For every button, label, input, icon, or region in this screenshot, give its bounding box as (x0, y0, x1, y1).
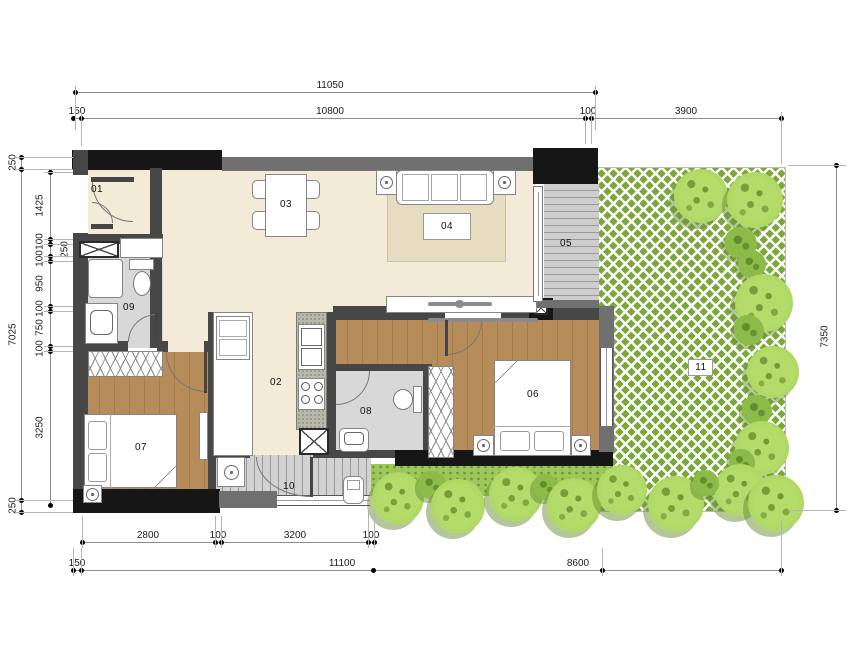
tree-13 (748, 475, 804, 531)
room-label-bath-ensuite: 08 (356, 406, 376, 417)
room-label-balcony: 05 (556, 238, 576, 249)
shower-tray (88, 259, 123, 298)
hall-passage-floor (160, 240, 208, 352)
balcony-sliding-door (533, 186, 543, 302)
dim-top-3900: 3900 (666, 106, 706, 117)
lamp-nightstand-left (477, 439, 490, 452)
wall-top-gray (222, 157, 535, 171)
column-top-right (533, 148, 598, 184)
dim-left-950: 950 (35, 270, 46, 298)
sink-basin-2 (301, 348, 322, 366)
window-master-line (606, 348, 607, 426)
bed-second-blanket-line (110, 414, 111, 488)
dim-left-1425: 1425 (35, 192, 46, 220)
dim-bottom-3200: 3200 (275, 530, 315, 541)
sink-main (90, 310, 113, 335)
bush-3 (734, 315, 764, 345)
tree-8 (431, 479, 485, 533)
toilet-main-tank (129, 259, 154, 270)
tree-10 (547, 478, 601, 532)
bath-main-door-leaf (155, 313, 158, 342)
entry-cabinet (120, 238, 163, 258)
dim-bottom-100a: 100 (208, 530, 228, 541)
dim-left-100d: 100 (35, 335, 46, 363)
dining-chair-4 (305, 211, 320, 230)
bed-second-pillow-2 (88, 453, 107, 482)
dim-top-150: 150 (67, 106, 87, 117)
entry-door-leaf-small (91, 224, 113, 229)
burner-3 (301, 395, 310, 404)
service-door-leaf (310, 457, 313, 497)
sink-ensuite-inner (344, 432, 364, 445)
dim-left-100b: 100 (35, 245, 46, 273)
bedroom2-door-leaf (204, 352, 207, 393)
dim-left-7025: 7025 (8, 320, 19, 350)
dim-line-left-outer (21, 157, 22, 512)
toilet-ensuite-bowl (393, 389, 413, 410)
fridge-inner-2 (219, 339, 247, 356)
bed-master-pillow-1 (500, 431, 530, 451)
floor-plan-canvas: 01 02 03 04 05 06 07 08 09 10 11 11050 1… (0, 0, 855, 655)
sofa-cushion-1 (402, 174, 429, 201)
dim-right-7350: 7350 (820, 322, 831, 352)
lamp-right (498, 176, 511, 189)
dim-line-right (836, 165, 837, 510)
tv-living-stand (455, 300, 464, 308)
tree-1 (674, 169, 728, 223)
room-label-kitchen: 02 (266, 377, 286, 388)
shaft (299, 428, 329, 455)
bed-second-fold (155, 466, 176, 487)
bed-master-fold (495, 361, 517, 383)
water-heater-inner (347, 480, 360, 490)
lamp-second (86, 488, 99, 501)
burner-1 (301, 382, 310, 391)
burner-2 (314, 382, 323, 391)
dim-line-top-total (75, 92, 595, 93)
dim-line-left-inner (50, 172, 51, 505)
room-label-service: 10 (279, 481, 299, 492)
washer-drum (224, 465, 239, 480)
wardrobe-second (88, 351, 163, 377)
burner-4 (314, 395, 323, 404)
sink-basin-1 (301, 328, 322, 346)
toilet-ensuite-tank (413, 386, 422, 413)
dim-bottom-2800: 2800 (128, 530, 168, 541)
master-door-leaf (445, 320, 448, 356)
tree-7 (372, 472, 424, 524)
dim-bottom-150: 150 (67, 558, 87, 569)
bed-second-pillow-1 (88, 421, 107, 450)
dim-left-3250: 3250 (35, 414, 46, 442)
wall-bottom-gray-block (219, 491, 277, 508)
wardrobe-master (428, 366, 454, 458)
desk-second (199, 412, 208, 460)
dim-bottom-8600: 8600 (556, 558, 600, 569)
shoe-cabinet (79, 241, 119, 258)
lamp-left (380, 176, 393, 189)
wall-top-black (72, 150, 222, 170)
entry-door-opening (73, 175, 88, 233)
dim-top-10800: 10800 (310, 106, 350, 117)
room-label-dining: 03 (276, 199, 296, 210)
dim-bottom-100b: 100 (361, 530, 381, 541)
bush-8 (693, 470, 719, 496)
fridge-inner-1 (219, 320, 247, 337)
tree-2 (727, 172, 783, 228)
dim-bottom-11100: 11100 (320, 558, 364, 569)
tree-4 (747, 346, 799, 398)
dim-line-bottom-outer (73, 570, 781, 571)
dim-top-total: 11050 (310, 80, 350, 91)
wall-balcony-bottom (535, 300, 599, 308)
room-label-entry: 01 (87, 184, 107, 195)
dim-line-top-chain (73, 118, 781, 119)
toilet-main-bowl (133, 271, 151, 296)
lamp-nightstand-right (574, 439, 587, 452)
room-label-garden: 11 (691, 362, 711, 373)
dim-line-bottom-inner (82, 542, 374, 543)
sofa-cushion-3 (460, 174, 487, 201)
room-label-master: 06 (523, 389, 543, 400)
room-label-bedroom2: 07 (131, 442, 151, 453)
room-label-living: 04 (437, 221, 457, 232)
tree-11 (597, 465, 647, 515)
sofa-cushion-2 (431, 174, 458, 201)
bed-master-blanket-line (494, 426, 571, 427)
room-label-bath-main: 09 (119, 302, 139, 313)
bed-master-pillow-2 (534, 431, 564, 451)
dining-chair-3 (305, 180, 320, 199)
